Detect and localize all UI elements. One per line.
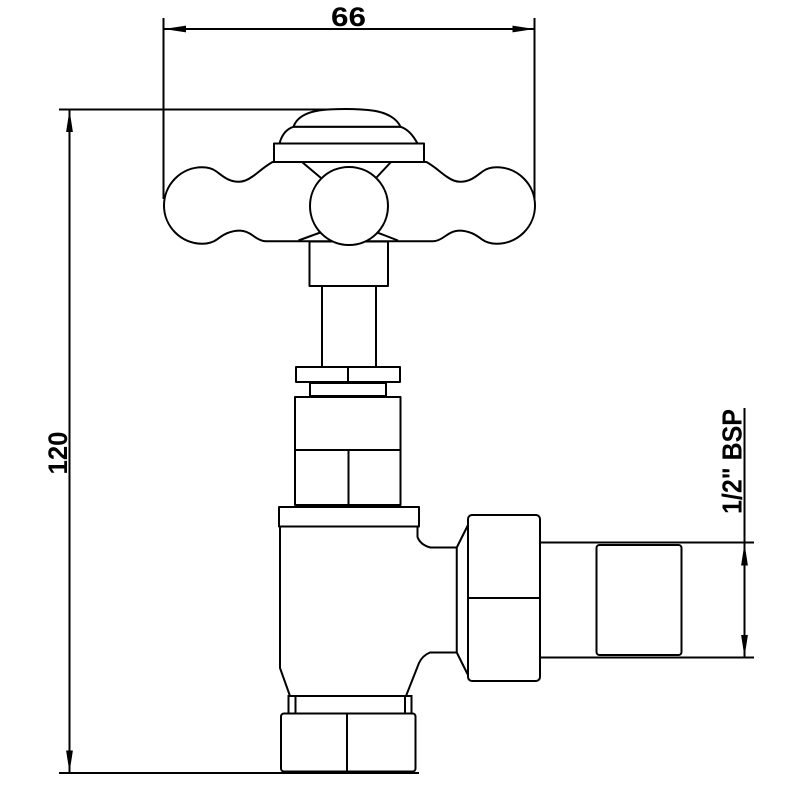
svg-text:1/2" BSP: 1/2" BSP xyxy=(717,409,748,514)
svg-text:120: 120 xyxy=(43,432,73,475)
svg-text:66: 66 xyxy=(331,2,366,32)
